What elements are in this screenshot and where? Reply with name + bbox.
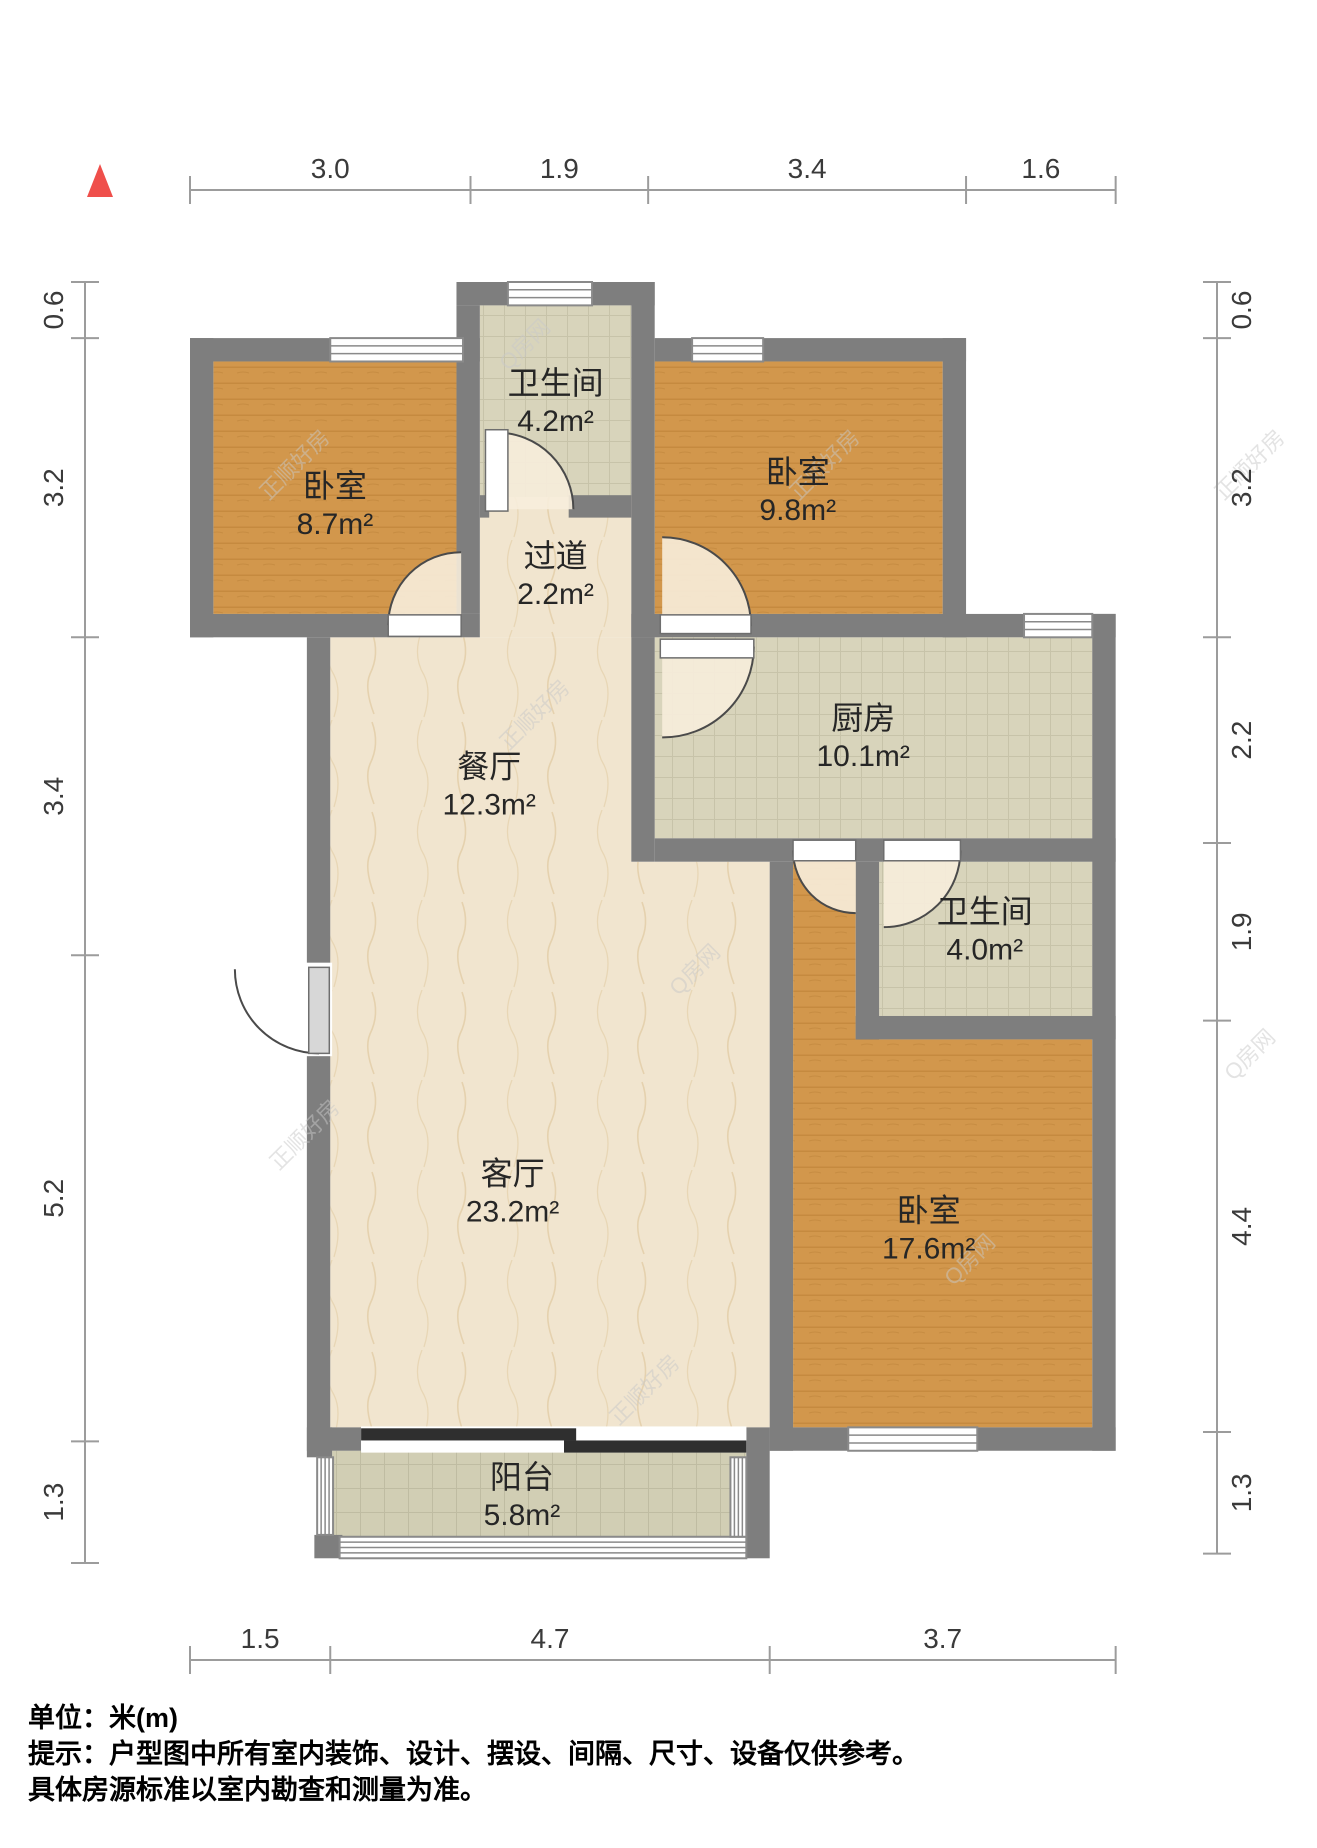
room-name-living: 客厅	[481, 1155, 545, 1191]
hint-note-1: 提示：户型图中所有室内装饰、设计、摆设、间隔、尺寸、设备仅供参考。	[28, 1736, 919, 1772]
dimension-top: 3.01.93.41.6	[190, 153, 1116, 204]
unit-note: 单位：米(m)	[28, 1700, 919, 1736]
room-area-hallway: 2.2m²	[517, 578, 594, 611]
dim-value: 0.6	[1226, 291, 1257, 330]
wall	[943, 338, 966, 637]
dim-value: 1.5	[241, 1623, 280, 1654]
dim-value: 1.9	[540, 153, 579, 184]
dim-value: 3.0	[311, 153, 350, 184]
room-area-living: 23.2m²	[466, 1195, 559, 1228]
dim-value: 3.2	[1226, 468, 1257, 507]
disclaimer-text: 单位：米(m) 提示：户型图中所有室内装饰、设计、摆设、间隔、尺寸、设备仅供参考…	[28, 1700, 919, 1808]
dim-value: 4.4	[1226, 1207, 1257, 1246]
watermark-text: Q房网	[1219, 1024, 1280, 1085]
hint-note-2: 具体房源标准以室内勘查和测量为准。	[28, 1772, 919, 1808]
wall	[190, 338, 213, 637]
wall	[856, 1016, 1116, 1039]
dim-value: 3.4	[38, 777, 69, 816]
dim-value: 5.2	[38, 1179, 69, 1218]
room-name-bathroom-top: 卫生间	[508, 365, 604, 401]
balcony-rail-left	[317, 1457, 333, 1535]
dim-value: 1.3	[38, 1483, 69, 1522]
dim-value: 3.7	[923, 1623, 962, 1654]
window-bedroom-right	[848, 1427, 977, 1450]
wall	[330, 1427, 361, 1450]
room-area-bedroom-top-right: 9.8m²	[759, 494, 836, 527]
room-name-bathroom-right: 卫生间	[937, 893, 1033, 929]
floor-plan-svg: 正顺好房Q房网正顺好房正顺好房正顺好房Q房网正顺好房Q房网Q房网正顺好房卧室8.…	[0, 0, 1317, 1848]
room-area-balcony: 5.8m²	[484, 1499, 561, 1532]
room-area-bedroom-right: 17.6m²	[882, 1233, 975, 1266]
floor-plan: 正顺好房Q房网正顺好房正顺好房正顺好房Q房网正顺好房Q房网Q房网正顺好房卧室8.…	[0, 0, 1317, 1848]
dim-value: 1.3	[1226, 1473, 1257, 1512]
room-area-bathroom-top: 4.2m²	[517, 405, 594, 438]
wall	[569, 495, 632, 517]
dim-value: 1.9	[1226, 912, 1257, 951]
room-name-hallway: 过道	[524, 538, 588, 574]
dim-value: 2.2	[1226, 721, 1257, 760]
room-area-kitchen: 10.1m²	[817, 740, 910, 773]
dim-value: 4.7	[531, 1623, 570, 1654]
room-name-bedroom-right: 卧室	[897, 1193, 961, 1229]
sliding-door-balcony	[361, 1426, 746, 1452]
floor-plan-page: 正顺好房Q房网正顺好房正顺好房正顺好房Q房网正顺好房Q房网Q房网正顺好房卧室8.…	[0, 0, 1317, 1848]
window-kitchen	[1024, 614, 1092, 637]
dimension-left: 0.63.23.45.21.3	[38, 282, 99, 1563]
window-bathroom-top	[508, 282, 592, 305]
wall	[631, 637, 654, 861]
wall	[307, 1427, 332, 1457]
dimension-right: 0.63.22.21.94.41.3	[1203, 282, 1257, 1554]
dimension-bottom: 1.54.73.7	[190, 1623, 1116, 1674]
room-name-dining: 餐厅	[457, 749, 521, 785]
window-bedroom-top-right	[692, 338, 763, 361]
dim-value: 0.6	[38, 291, 69, 330]
balcony-rail-right	[730, 1457, 746, 1536]
dim-value: 1.6	[1021, 153, 1060, 184]
room-name-balcony: 阳台	[490, 1459, 554, 1495]
dim-value: 3.4	[788, 153, 827, 184]
wall	[631, 282, 654, 637]
room-name-bedroom-top-right: 卧室	[766, 454, 830, 490]
room-name-bedroom-top-left: 卧室	[303, 468, 367, 504]
wall	[746, 1427, 769, 1558]
wall	[770, 862, 793, 1451]
wall	[856, 862, 879, 1040]
dim-value: 3.2	[38, 468, 69, 507]
window-bedroom-top-left	[330, 338, 463, 361]
door-entrance	[235, 963, 332, 1056]
room-area-dining: 12.3m²	[443, 789, 536, 822]
wall	[314, 1535, 342, 1558]
room-name-kitchen: 厨房	[831, 700, 895, 736]
room-area-bathroom-right: 4.0m²	[946, 933, 1023, 966]
room-area-bedroom-top-left: 8.7m²	[297, 508, 374, 541]
north-indicator	[87, 164, 113, 197]
balcony-rail-bottom	[340, 1537, 747, 1559]
